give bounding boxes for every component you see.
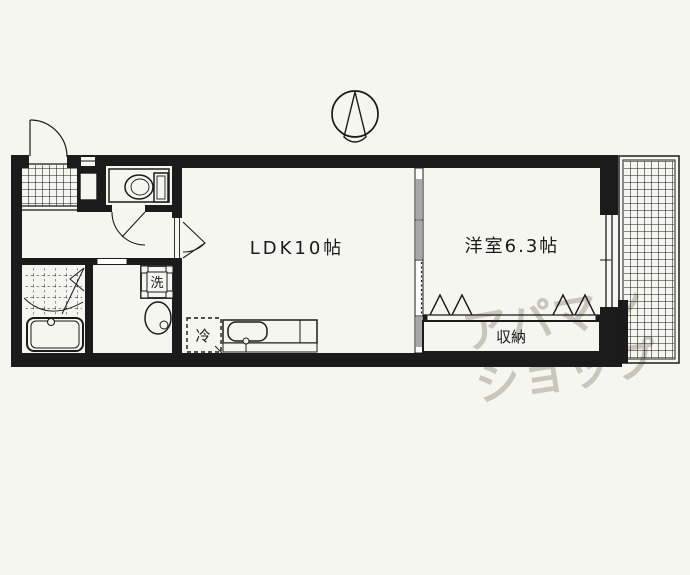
floor-plan-image: アパマン ショップ [0, 0, 690, 575]
bathroom [24, 267, 84, 351]
bathtub-icon [27, 318, 83, 351]
toilet-door-opening [112, 205, 145, 212]
refrigerator-label: 冷 [195, 327, 210, 345]
balcony-grid [624, 161, 674, 358]
washroom: 洗 [97, 259, 173, 335]
balcony-window [600, 215, 618, 307]
north-compass-icon [332, 91, 378, 142]
shoe-cabinet [80, 173, 97, 200]
ldk-label: LDK10帖 [250, 238, 345, 259]
floor-plan-drawing: 洗 LDK10帖 冷 [0, 0, 690, 575]
closet-label: 収納 [496, 328, 526, 346]
ldk-door-opening [172, 218, 182, 258]
toilet-room [106, 166, 172, 205]
western-room-label: 洋室6.3帖 [465, 236, 560, 257]
kitchen-counter-icon [223, 320, 317, 352]
balcony [619, 156, 679, 363]
toilet-door-icon [112, 212, 145, 245]
genkan-tile-grid [22, 165, 77, 206]
washbasin-icon [145, 302, 171, 334]
sliding-partition [415, 168, 423, 353]
entrance-door-icon [30, 120, 67, 157]
closet-door-marks [430, 295, 595, 315]
sliding-panel [97, 259, 127, 265]
washer-label: 洗 [150, 276, 163, 291]
toilet-icon [125, 173, 168, 202]
room-ldk: LDK10帖 冷 [187, 238, 344, 353]
room-western: 洋室6.3帖 収納 [423, 236, 600, 352]
ldk-door-icon [183, 222, 205, 258]
